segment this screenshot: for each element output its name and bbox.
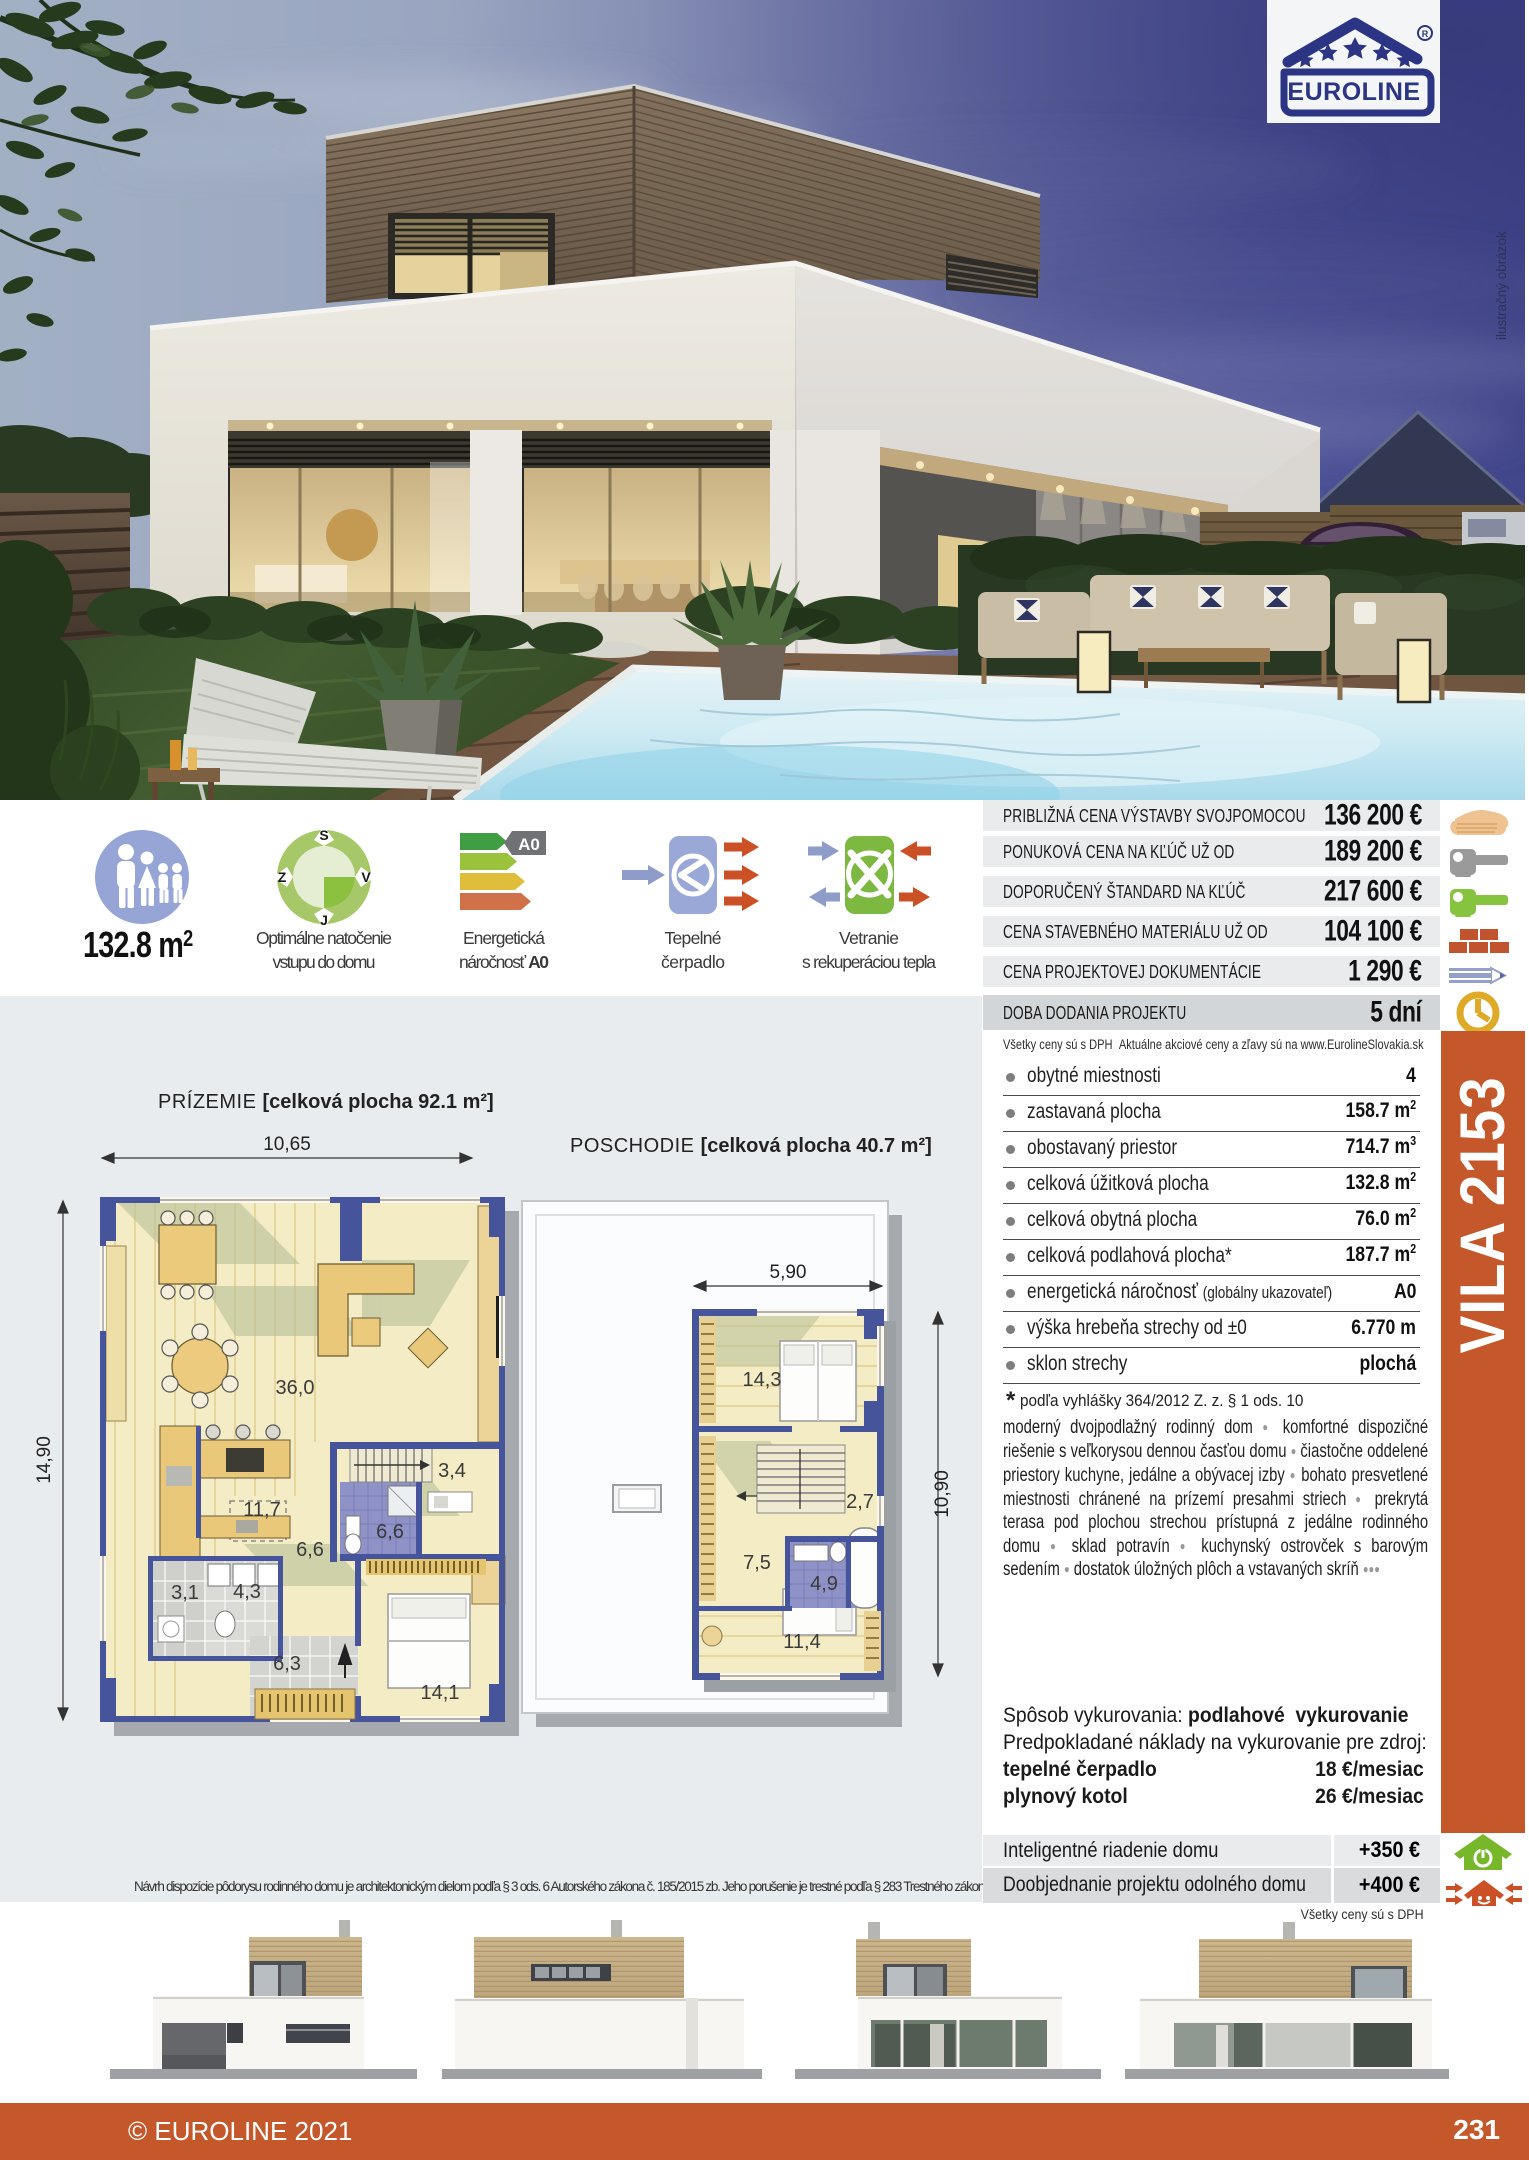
svg-text:14,1: 14,1 — [421, 1682, 460, 1704]
svg-text:7,5: 7,5 — [743, 1552, 771, 1574]
svg-text:Optimálne natočenie: Optimálne natočenie — [256, 928, 392, 948]
svg-text:2,7: 2,7 — [846, 1491, 874, 1513]
svg-text:5,90: 5,90 — [770, 1262, 807, 1283]
svg-text:11,7: 11,7 — [243, 1499, 280, 1521]
svg-text:čerpadlo: čerpadlo — [661, 952, 725, 972]
svg-text:náročnosť A0: náročnosť A0 — [459, 952, 549, 972]
svg-text:6,6: 6,6 — [296, 1539, 324, 1561]
svg-text:14,3: 14,3 — [743, 1369, 782, 1391]
svg-text:A0: A0 — [518, 835, 540, 854]
svg-text:11,4: 11,4 — [783, 1631, 820, 1653]
svg-text:3,4: 3,4 — [438, 1460, 466, 1482]
svg-text:14,90: 14,90 — [34, 1436, 55, 1484]
svg-text:EUROLINE: EUROLINE — [1287, 78, 1420, 106]
svg-text:10,90: 10,90 — [932, 1470, 953, 1518]
svg-text:Návrh dispozície pôdorysu rodi: Návrh dispozície pôdorysu rodinného domu… — [134, 1879, 994, 1894]
svg-text:vstupu do domu: vstupu do domu — [273, 952, 376, 972]
svg-text:6,3: 6,3 — [273, 1653, 301, 1675]
svg-text:36,0: 36,0 — [276, 1377, 315, 1399]
svg-text:Tepelné: Tepelné — [665, 928, 722, 948]
svg-text:POSCHODIE [celková plocha 40.7: POSCHODIE [celková plocha 40.7 m²] — [570, 1135, 932, 1157]
svg-text:10,65: 10,65 — [263, 1134, 311, 1155]
svg-text:132.8 m2: 132.8 m2 — [83, 924, 193, 965]
svg-text:J: J — [320, 912, 328, 928]
svg-text:Energetická: Energetická — [463, 928, 545, 948]
svg-text:S: S — [319, 827, 328, 843]
svg-text:Z: Z — [278, 869, 287, 885]
svg-text:V: V — [361, 869, 371, 885]
svg-text:s rekuperáciou tepla: s rekuperáciou tepla — [802, 952, 936, 972]
svg-text:6,6: 6,6 — [376, 1521, 404, 1543]
svg-text:4,3: 4,3 — [233, 1581, 261, 1603]
svg-text:PRÍZEMIE [celková plocha 92.1: PRÍZEMIE [celková plocha 92.1 m²] — [158, 1090, 494, 1113]
svg-text:3,1: 3,1 — [171, 1582, 199, 1604]
svg-text:Vetranie: Vetranie — [839, 928, 899, 948]
svg-text:4,9: 4,9 — [810, 1573, 838, 1595]
svg-text:R: R — [1422, 29, 1429, 39]
